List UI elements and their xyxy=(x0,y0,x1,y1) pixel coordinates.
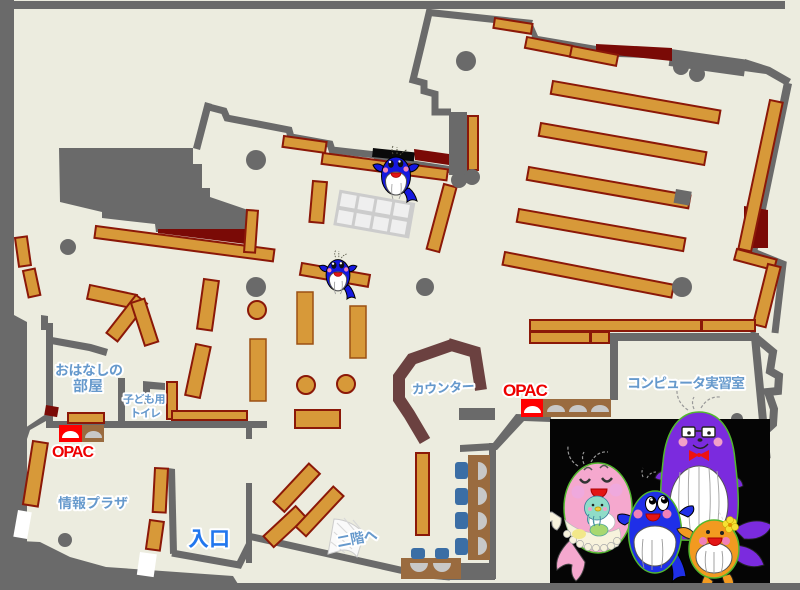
svg-text:OPAC: OPAC xyxy=(52,444,94,461)
svg-text:OPAC: OPAC xyxy=(503,381,548,400)
